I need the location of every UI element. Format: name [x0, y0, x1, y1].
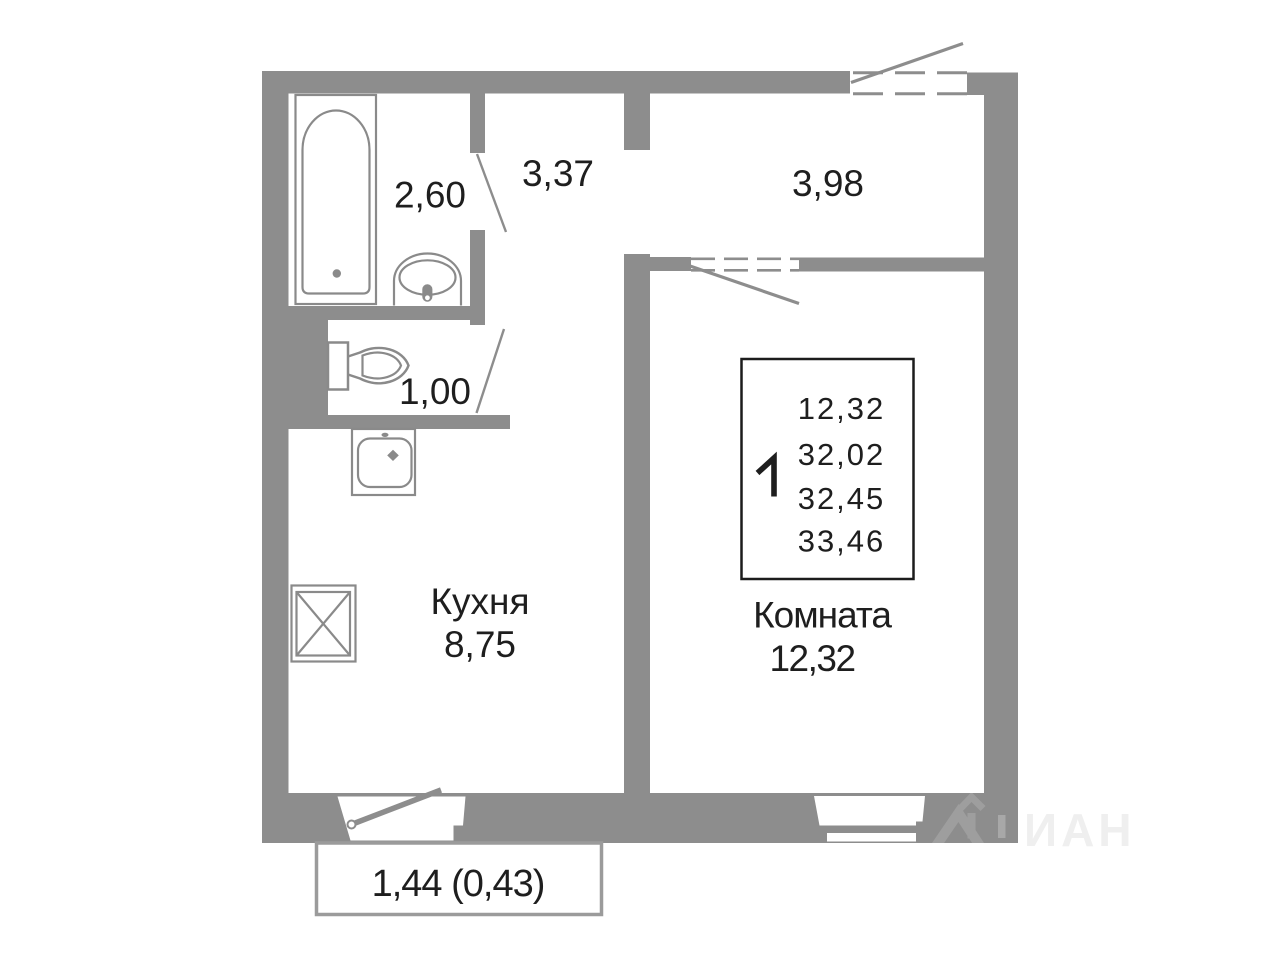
svg-text:3,98: 3,98 — [792, 163, 864, 204]
svg-text:2,60: 2,60 — [394, 175, 466, 216]
svg-text:Комната: Комната — [753, 595, 892, 636]
svg-text:32,45: 32,45 — [798, 481, 886, 516]
svg-text:12,32: 12,32 — [769, 638, 854, 679]
svg-text:1,44 (0,43): 1,44 (0,43) — [372, 863, 545, 905]
svg-text:1,00: 1,00 — [399, 371, 471, 412]
svg-text:33,46: 33,46 — [798, 523, 886, 558]
svg-text:Кухня: Кухня — [430, 581, 529, 622]
svg-text:3,37: 3,37 — [522, 153, 594, 194]
svg-text:12,32: 12,32 — [798, 391, 886, 426]
svg-text:ИАН: ИАН — [1024, 804, 1136, 856]
svg-text:32,02: 32,02 — [798, 437, 886, 472]
svg-text:8,75: 8,75 — [444, 624, 516, 665]
